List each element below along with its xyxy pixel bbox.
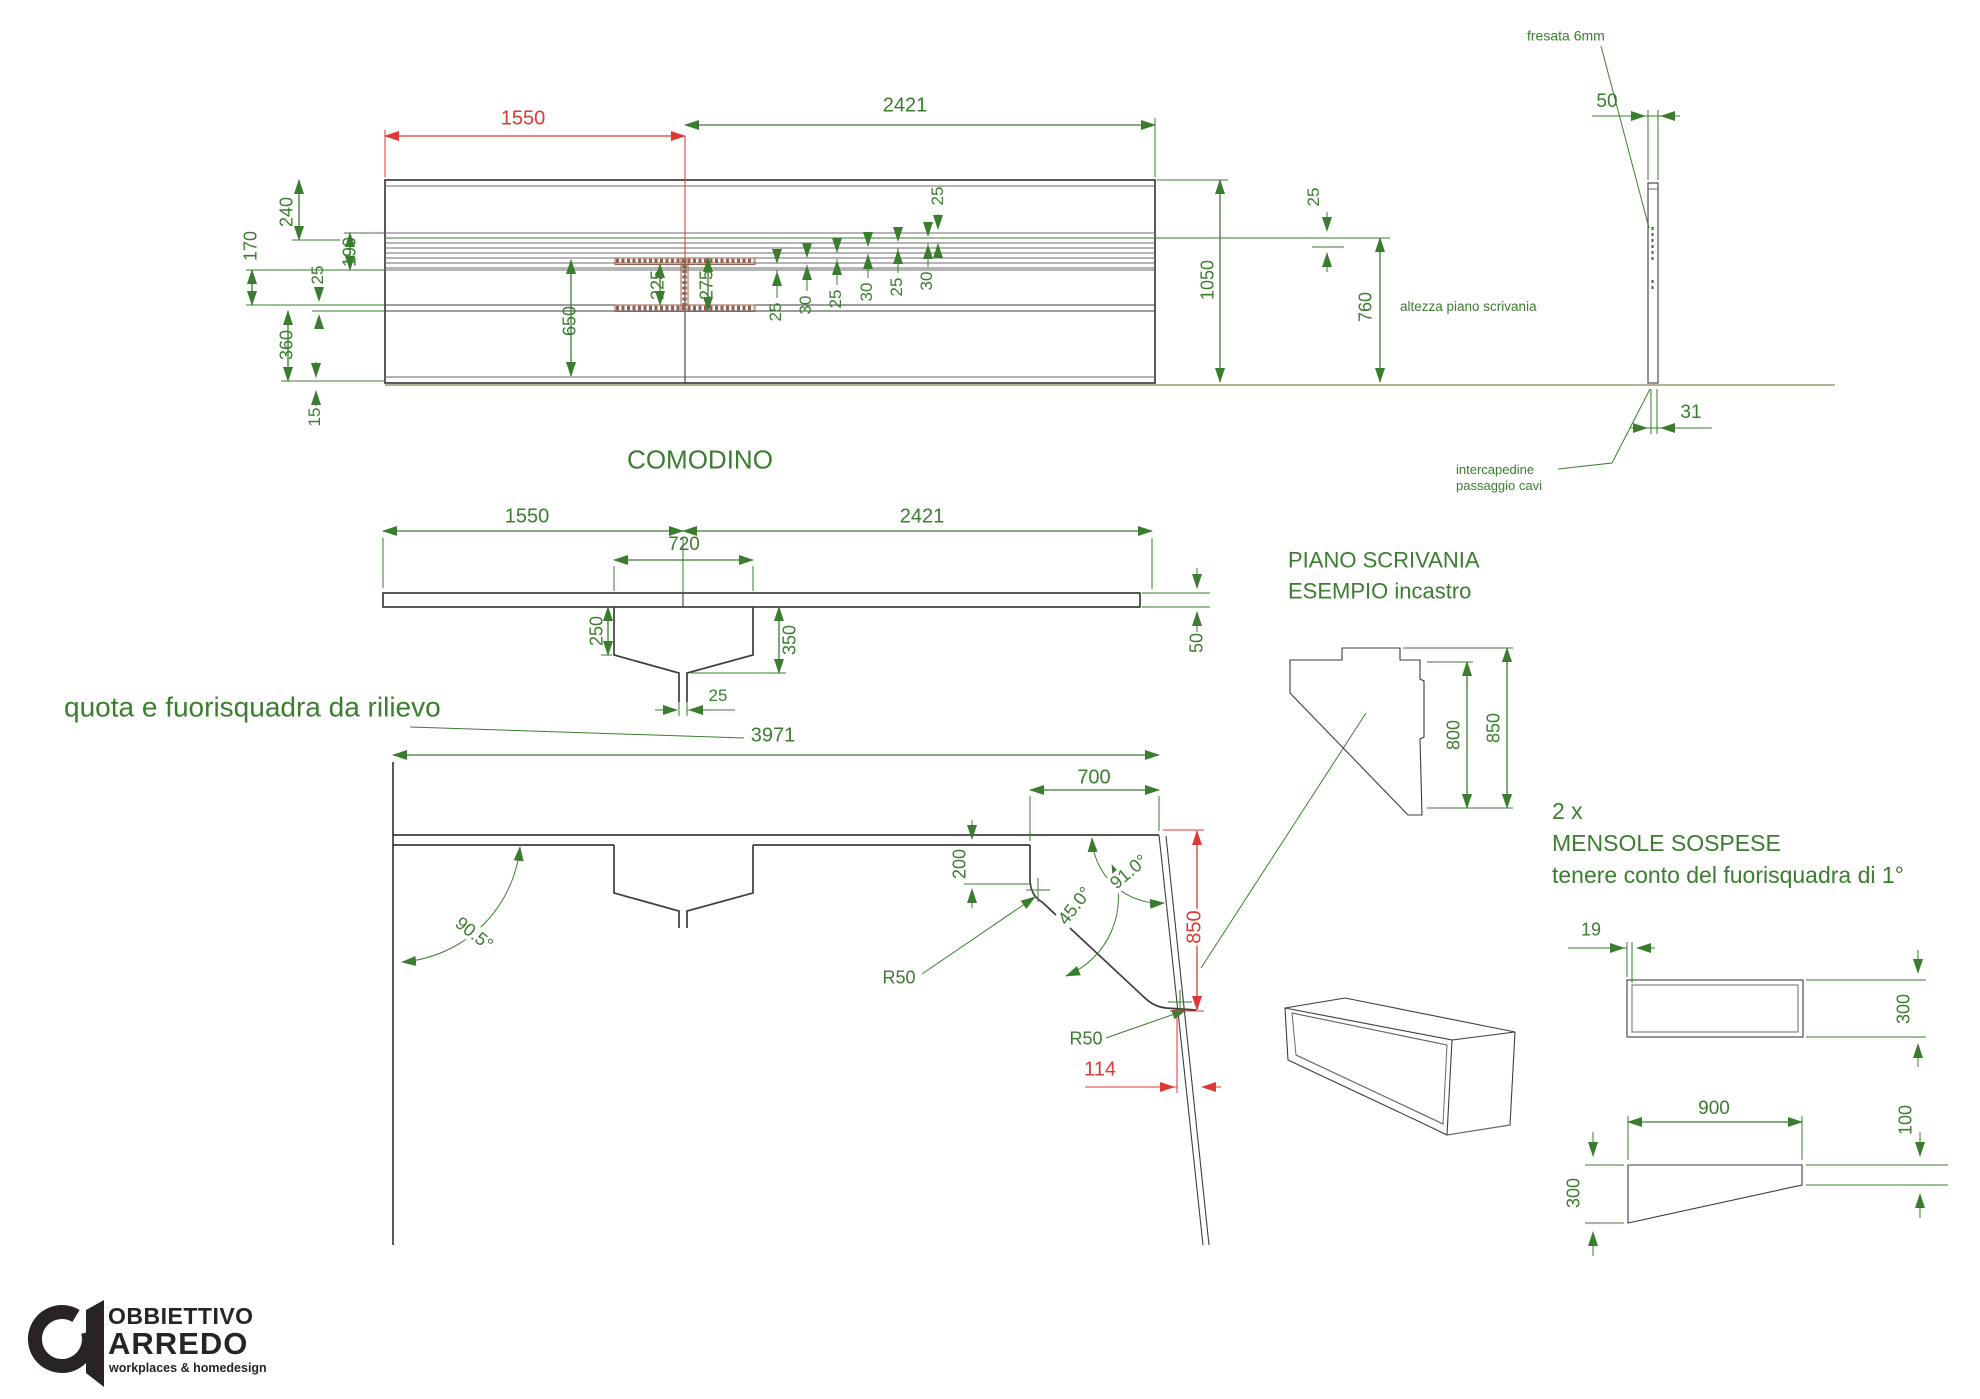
dim-190: 190 bbox=[341, 237, 360, 267]
dim-350: 350 bbox=[781, 625, 800, 655]
note-2x: 2 x bbox=[1552, 799, 1583, 823]
elevation-view bbox=[246, 118, 1390, 406]
dim-300-side: 300 bbox=[1565, 1178, 1584, 1208]
dim-50-fresata: 50 bbox=[1596, 92, 1617, 112]
dim-groove3-25: 25 bbox=[827, 290, 845, 309]
dim-31: 31 bbox=[1680, 403, 1701, 423]
dim-250: 250 bbox=[588, 616, 607, 646]
dim-240: 240 bbox=[278, 197, 297, 227]
incastro-detail bbox=[1290, 648, 1513, 815]
dim-700: 700 bbox=[1077, 768, 1110, 789]
shelf-3d-view bbox=[1285, 998, 1515, 1135]
dim-360: 360 bbox=[278, 330, 297, 360]
desk-plan-view bbox=[393, 713, 1366, 1245]
dim-114-red: 114 bbox=[1084, 1060, 1116, 1081]
title-piano-scrivania: PIANO SCRIVANIA bbox=[1288, 548, 1480, 571]
mensole-views bbox=[1285, 942, 1948, 1256]
logo-icon bbox=[35, 1300, 104, 1387]
note-passaggio-cavi: passaggio cavi bbox=[1456, 479, 1542, 493]
dim-850-detail: 850 bbox=[1485, 713, 1504, 743]
dim-r50-a: R50 bbox=[882, 969, 915, 988]
dim-plan-2421: 2421 bbox=[900, 507, 945, 528]
dim-groove2-30: 30 bbox=[797, 296, 815, 315]
dim-650: 650 bbox=[561, 306, 580, 336]
dim-170: 170 bbox=[242, 231, 261, 261]
dim-25-mid-top: 25 bbox=[929, 187, 947, 206]
dim-19: 19 bbox=[1581, 921, 1601, 940]
dim-200: 200 bbox=[951, 849, 970, 879]
dim-800: 800 bbox=[1445, 720, 1464, 750]
comodino-plan-view bbox=[383, 531, 1210, 716]
dim-900: 900 bbox=[1698, 1099, 1730, 1119]
dim-275: 275 bbox=[698, 270, 717, 300]
dim-3971: 3971 bbox=[751, 726, 796, 747]
drawing-sheet: OBBIETTIVO ARREDO workplaces & homedesig… bbox=[0, 0, 1980, 1399]
dim-225: 225 bbox=[649, 270, 668, 300]
dim-50-plank: 50 bbox=[1188, 633, 1207, 653]
title-comodino: COMODINO bbox=[627, 446, 773, 473]
note-fuorisquadra: tenere conto del fuorisquadra di 1° bbox=[1552, 863, 1904, 887]
logo-line3: workplaces & homedesign bbox=[109, 1361, 267, 1375]
dim-100: 100 bbox=[1897, 1105, 1916, 1135]
dim-300-front: 300 bbox=[1895, 994, 1914, 1024]
logo-line2: ARREDO bbox=[108, 1326, 248, 1362]
dim-plan-1550: 1550 bbox=[505, 507, 550, 528]
dim-r50-b: R50 bbox=[1069, 1030, 1102, 1049]
dim-850-red: 850 bbox=[1185, 908, 1206, 945]
dim-groove6-30: 30 bbox=[918, 272, 936, 291]
dim-1050: 1050 bbox=[1199, 260, 1218, 300]
dim-25-notch: 25 bbox=[709, 687, 728, 705]
title-esempio-incastro: ESEMPIO incastro bbox=[1288, 579, 1471, 602]
note-intercapedine: intercapedine bbox=[1456, 463, 1534, 477]
dim-wall-1550: 1550 bbox=[501, 109, 546, 130]
dim-25-left: 25 bbox=[309, 266, 327, 285]
dim-groove4-30: 30 bbox=[858, 283, 876, 302]
note-mensole-sospese: MENSOLE SOSPESE bbox=[1552, 831, 1781, 855]
note-fresata: fresata 6mm bbox=[1527, 29, 1605, 44]
note-quota: quota e fuorisquadra da rilievo bbox=[64, 692, 441, 721]
note-altezza: altezza piano scrivania bbox=[1400, 300, 1537, 314]
dim-760: 760 bbox=[1357, 292, 1376, 322]
dim-25-right: 25 bbox=[1305, 188, 1323, 207]
dim-720: 720 bbox=[668, 535, 700, 555]
dim-groove5-25: 25 bbox=[888, 278, 906, 297]
dim-groove1-25: 25 bbox=[767, 303, 785, 322]
dim-wall-2421: 2421 bbox=[883, 96, 928, 117]
dim-15: 15 bbox=[306, 408, 324, 427]
